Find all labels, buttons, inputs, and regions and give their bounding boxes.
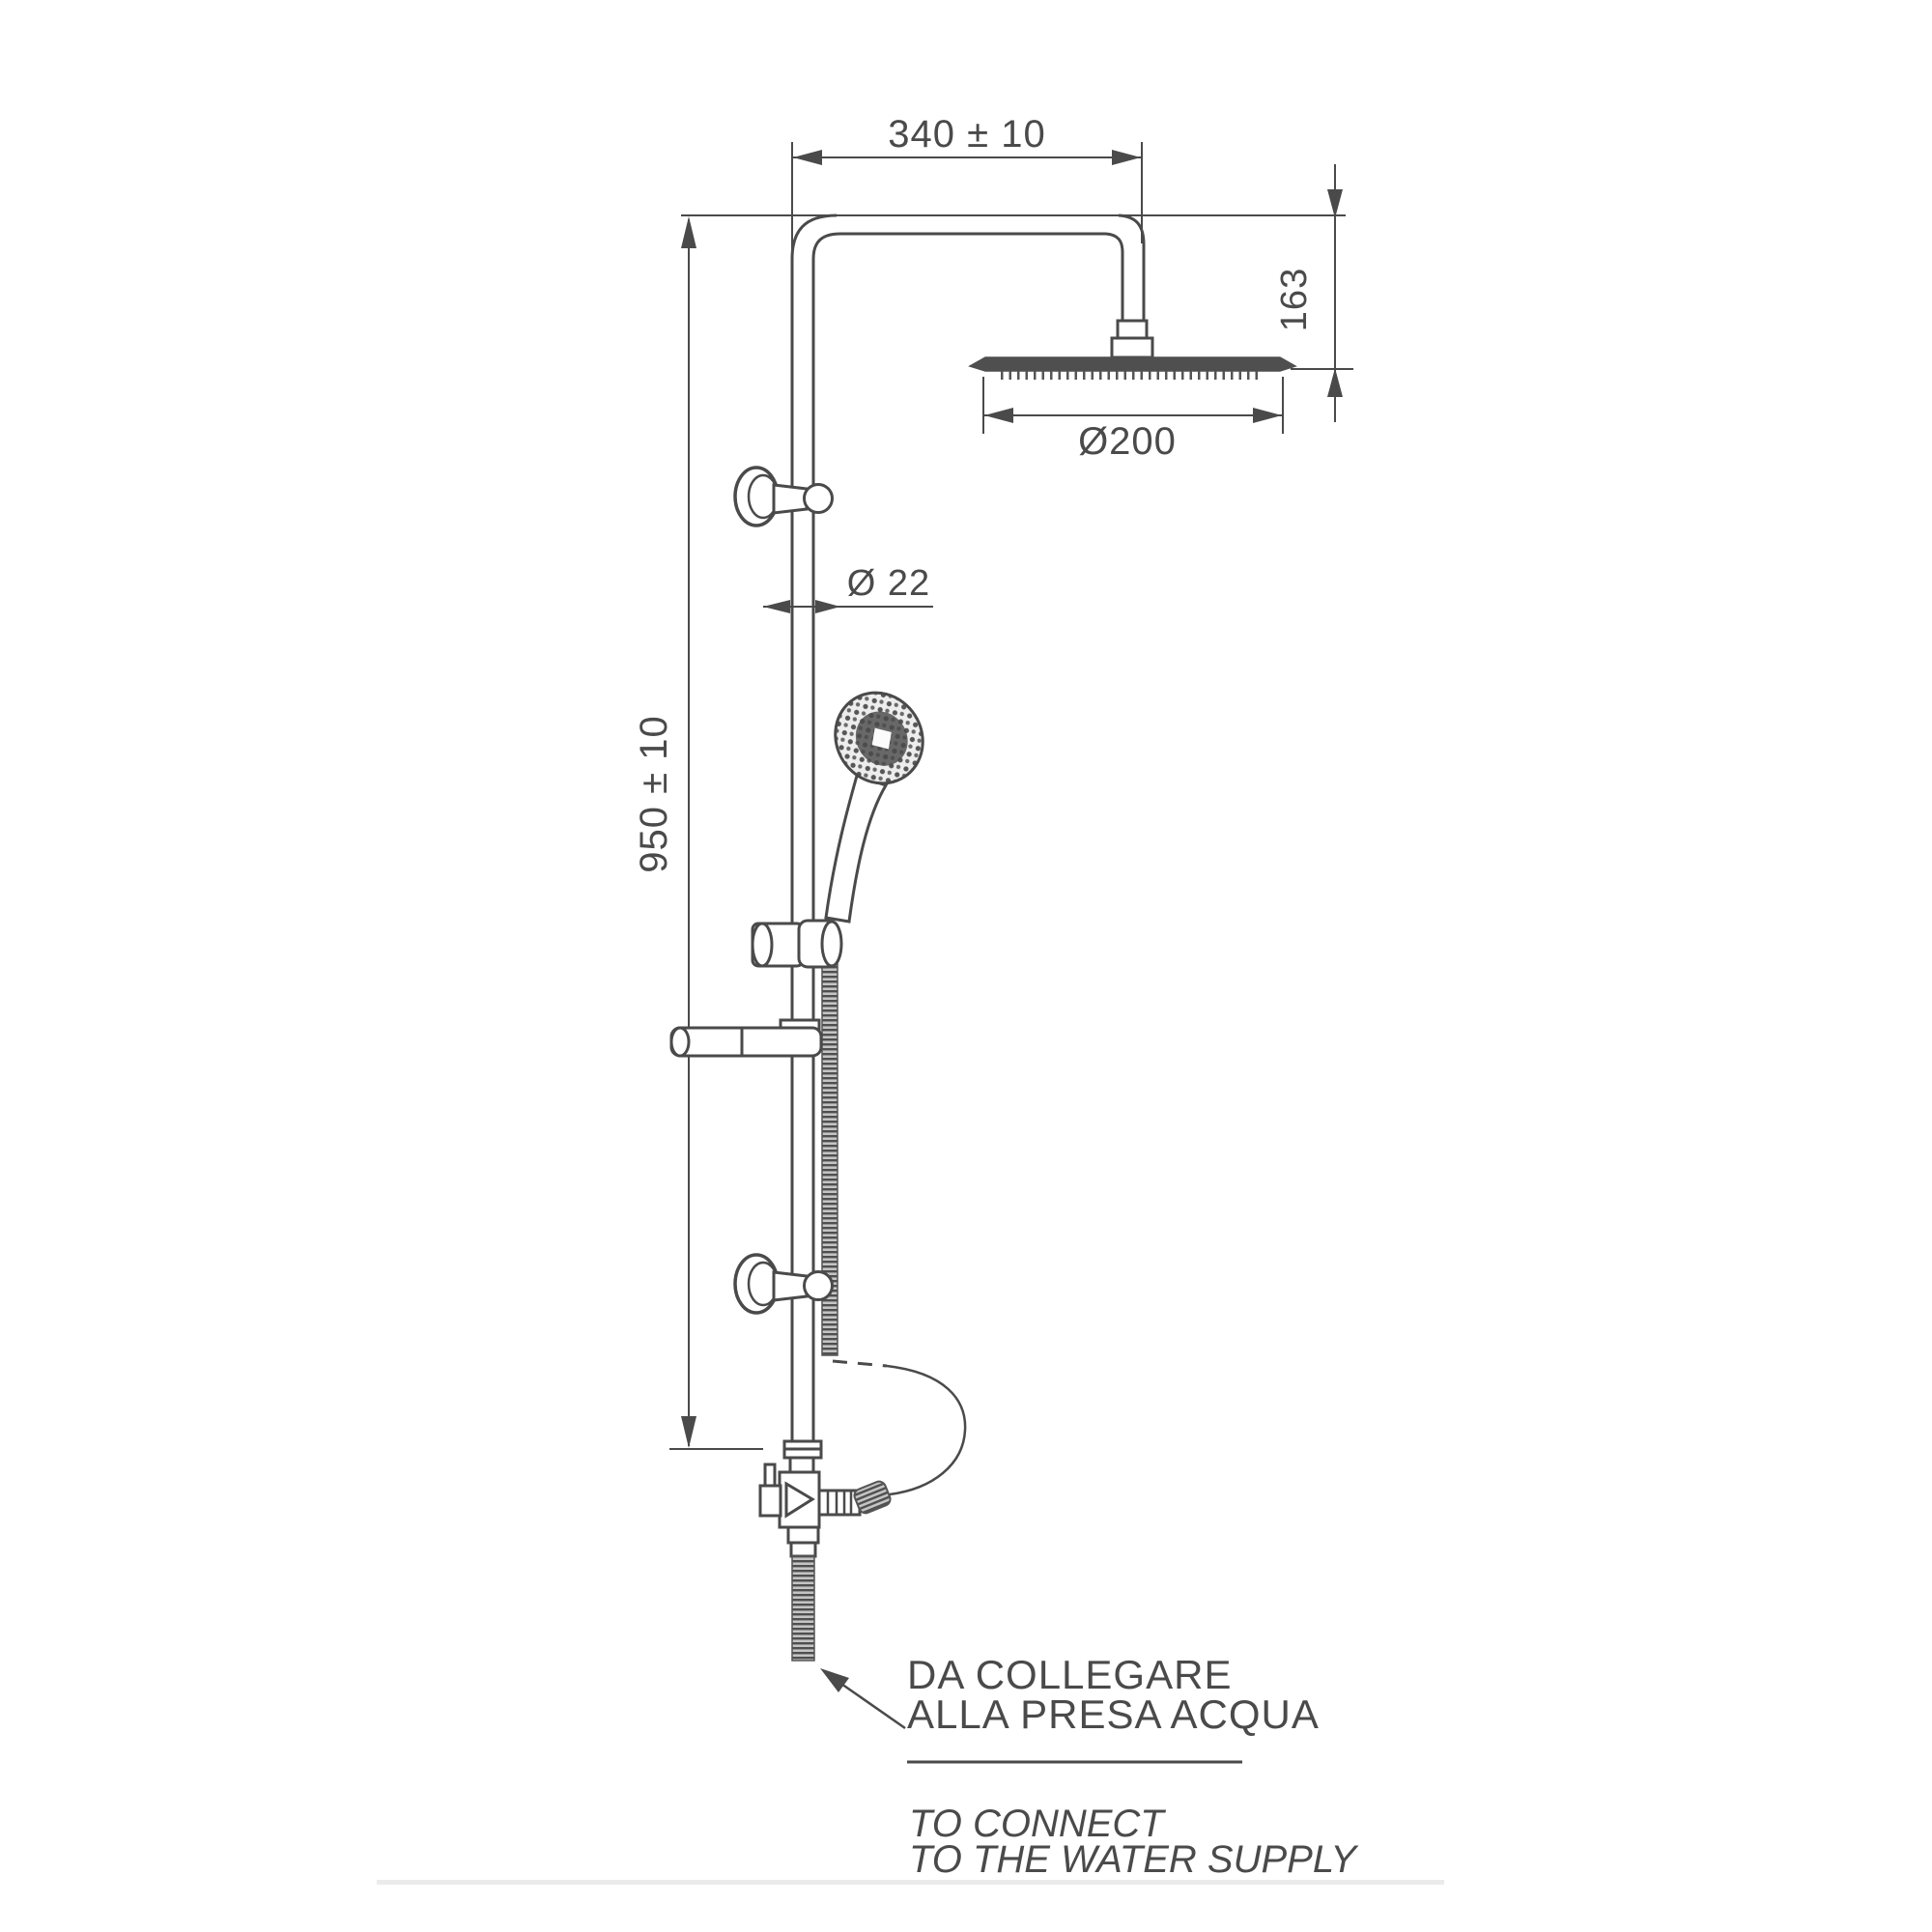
bracket-neck — [774, 485, 807, 513]
valve-handle — [760, 1486, 781, 1516]
lower-wall-bracket — [735, 1255, 833, 1313]
dim-label-head-drop: 163 — [1274, 268, 1315, 331]
hose-loop-curve — [887, 1366, 965, 1494]
arrowhead-left-icon — [984, 408, 1013, 423]
bracket-ball — [805, 1272, 833, 1300]
holder-left-cap — [753, 923, 772, 966]
dim-label-pipe-diameter: Ø 22 — [847, 563, 930, 604]
valve-handle-stem — [765, 1464, 775, 1486]
head-connector-nut — [1118, 321, 1147, 338]
soap-dish-tray — [671, 1028, 821, 1056]
arrowhead-right-icon — [1112, 150, 1141, 165]
page-bottom-streak — [377, 1880, 1444, 1885]
note-it-line1: DA COLLEGARE — [907, 1652, 1232, 1697]
head-connector-body — [1112, 338, 1152, 357]
holder-cup-cap — [822, 922, 841, 966]
valve-bottom-collar — [788, 1527, 818, 1543]
hand-shower-handle — [826, 776, 886, 922]
dimension-arm-width — [792, 142, 1142, 257]
arrowhead-left-icon — [793, 150, 822, 165]
arrowhead-down-icon — [681, 1416, 696, 1448]
note-leader-arrow — [820, 1668, 905, 1728]
rain-head-disc — [970, 357, 1295, 371]
supply-hose — [792, 1556, 814, 1661]
arrowhead-down-icon — [1327, 189, 1343, 218]
arrowhead-up-icon — [681, 216, 696, 248]
hose-loop — [833, 1361, 965, 1494]
diverter-valve — [760, 1441, 893, 1556]
hand-shower-head — [818, 676, 940, 800]
rain-shower-head — [970, 321, 1295, 376]
arrowhead-up-icon — [1327, 368, 1343, 397]
slider-holder — [753, 921, 841, 967]
arrowhead-left-icon — [763, 600, 790, 613]
arrowhead-upleft-icon — [820, 1668, 849, 1692]
shower-column-diagram: 340 ± 10 163 Ø200 Ø 22 950 ± 10 DA COLLE… — [0, 0, 1932, 1932]
arm-down-bend-inner — [1106, 234, 1122, 321]
arrowhead-right-icon — [815, 600, 840, 613]
bracket-ball — [805, 485, 833, 513]
hand-shower — [818, 676, 940, 922]
drawing-canvas: 340 ± 10 163 Ø200 Ø 22 950 ± 10 DA COLLE… — [0, 0, 1932, 1932]
dim-label-arm-width: 340 ± 10 — [888, 113, 1045, 156]
upper-wall-bracket — [735, 468, 833, 526]
dimension-lines — [669, 142, 1353, 1449]
arrowhead-right-icon — [1253, 408, 1282, 423]
note-en-line2: TO THE WATER SUPPLY — [909, 1838, 1359, 1881]
note-italian: DA COLLEGARE ALLA PRESA ACQUA — [907, 1652, 1320, 1737]
pipe-bend-inner — [813, 234, 840, 259]
dim-label-head-diameter: Ø200 — [1078, 420, 1177, 463]
dim-label-column-height: 950 ± 10 — [633, 715, 675, 872]
hose-hidden-dashes — [833, 1361, 887, 1366]
bracket-neck — [774, 1272, 807, 1300]
note-it-line2: ALLA PRESA ACQUA — [907, 1691, 1320, 1737]
soap-dish — [671, 1020, 821, 1056]
note-english: TO CONNECT TO THE WATER SUPPLY — [909, 1803, 1359, 1881]
soap-dish-end-cap — [671, 1028, 689, 1056]
supply-nut — [791, 1543, 815, 1556]
